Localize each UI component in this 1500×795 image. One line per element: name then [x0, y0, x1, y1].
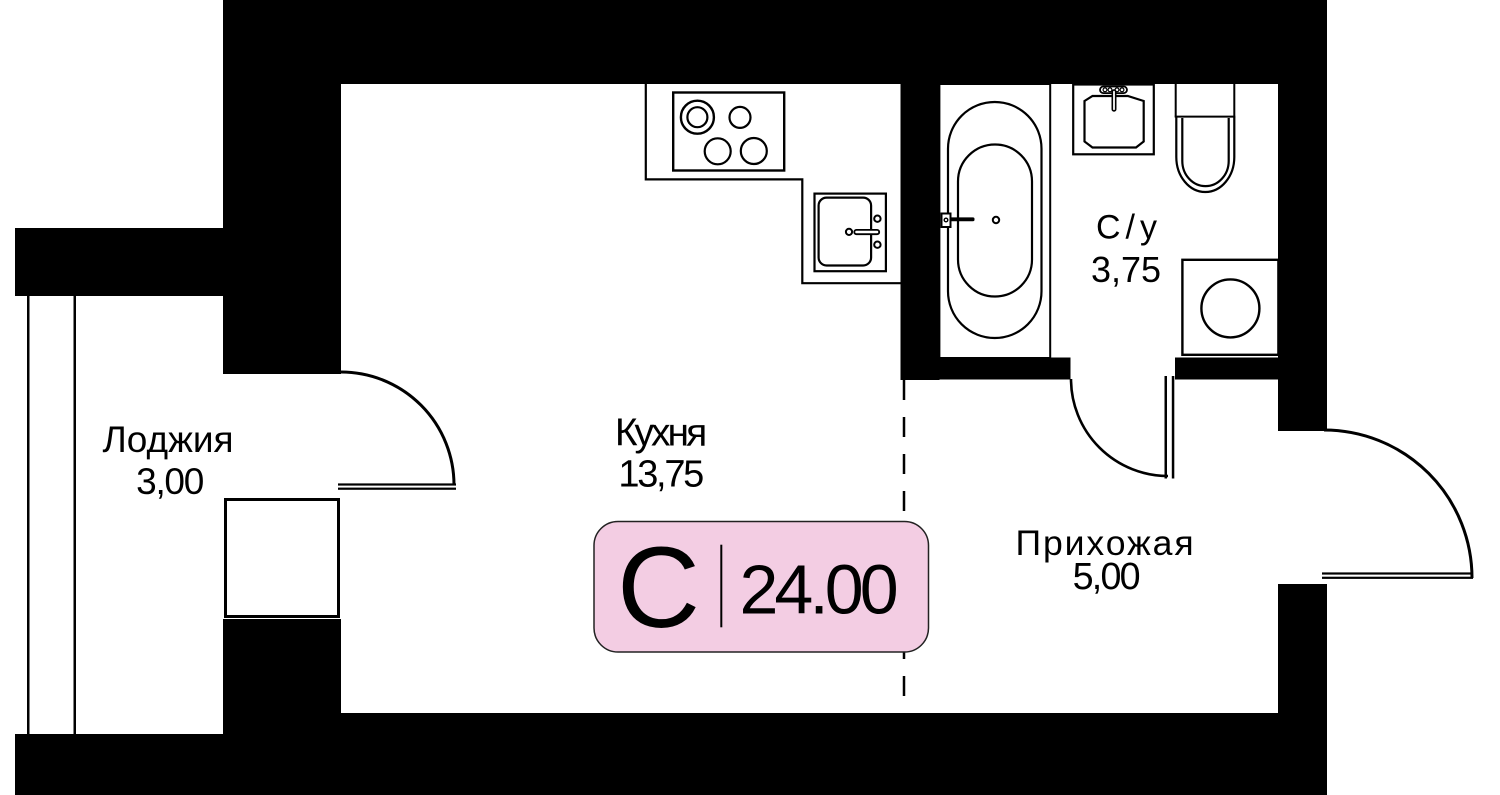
- svg-text:13,75: 13,75: [618, 454, 703, 496]
- svg-text:3,00: 3,00: [136, 461, 204, 502]
- svg-text:Кухня: Кухня: [615, 412, 705, 455]
- svg-text:Лоджия: Лоджия: [102, 419, 233, 460]
- svg-text:24.00: 24.00: [740, 551, 897, 629]
- svg-text:С: С: [617, 524, 700, 652]
- svg-text:С/у: С/у: [1096, 209, 1162, 247]
- svg-text:3,75: 3,75: [1091, 249, 1161, 290]
- svg-text:5,00: 5,00: [1073, 555, 1140, 597]
